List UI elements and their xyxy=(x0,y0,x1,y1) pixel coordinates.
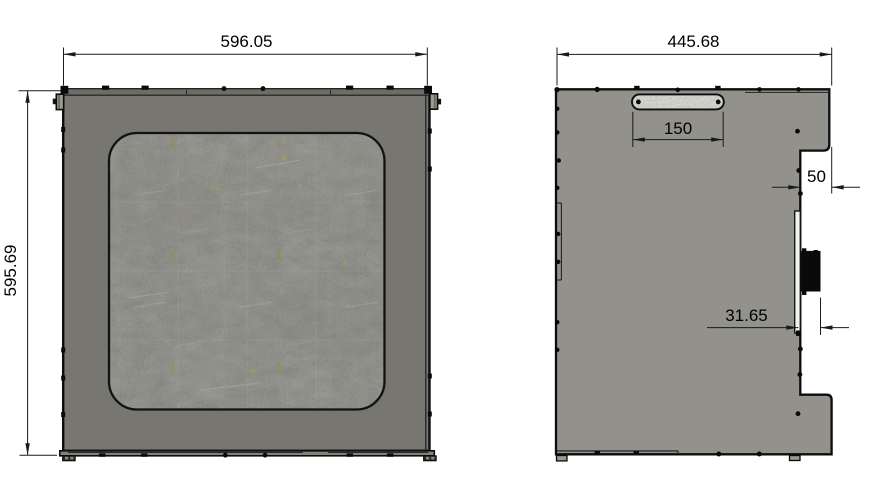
svg-text:150: 150 xyxy=(664,119,692,138)
svg-text:31.65: 31.65 xyxy=(725,306,768,325)
svg-text:596.05: 596.05 xyxy=(221,32,273,51)
svg-text:445.68: 445.68 xyxy=(668,32,720,51)
svg-text:595.69: 595.69 xyxy=(1,245,20,297)
svg-text:50: 50 xyxy=(807,167,826,186)
